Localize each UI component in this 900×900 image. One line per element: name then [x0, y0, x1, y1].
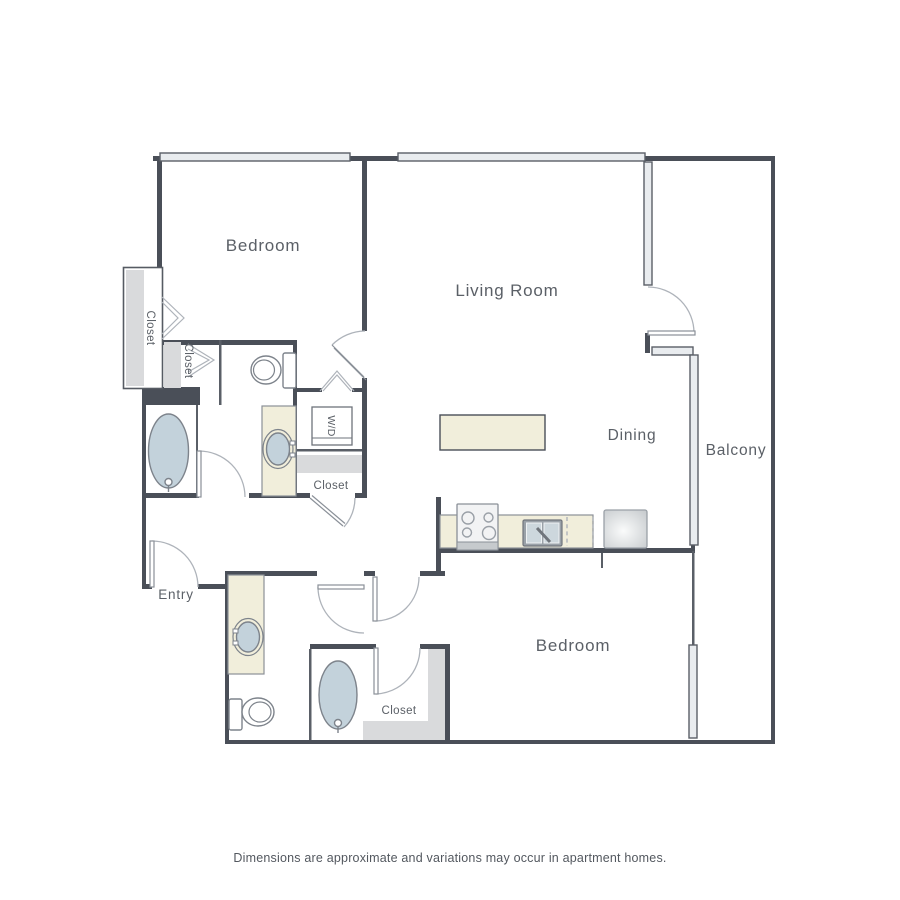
label-closet-left: Closet	[144, 311, 156, 346]
toilet-1	[251, 353, 296, 388]
bathroom1-door	[197, 451, 245, 497]
window-living-room	[398, 153, 645, 161]
room-label-entry: Entry	[158, 587, 194, 602]
window-balcony-upper	[644, 162, 652, 285]
toilet-2	[229, 698, 274, 730]
bathtub-2	[319, 661, 357, 733]
bedroom2-door	[373, 577, 419, 621]
bedroom1-door	[332, 331, 366, 380]
label-closet-bedroom2: Closet	[382, 705, 417, 717]
wall-chase	[142, 387, 200, 405]
closet-left-bifold	[162, 297, 184, 339]
room-label-bedroom-bottom: Bedroom	[536, 636, 611, 655]
refrigerator	[604, 510, 647, 548]
entry-door	[150, 541, 198, 587]
disclaimer-text: Dimensions are approximate and variation…	[233, 851, 666, 865]
washer-dryer-bifold	[320, 371, 354, 391]
room-label-balcony: Balcony	[706, 442, 767, 459]
kitchen-island	[440, 415, 545, 450]
room-label-living-room: Living Room	[455, 281, 558, 300]
stove	[457, 504, 498, 550]
floor-plan-page: Bedroom Living Room Dining Balcony Entry…	[0, 0, 900, 900]
label-closet-inner: Closet	[182, 344, 194, 379]
floor-plan: Bedroom Living Room Dining Balcony Entry…	[0, 0, 900, 900]
kitchen-sink	[523, 520, 562, 546]
hall-closet-door	[310, 496, 355, 528]
bathroom-fixtures	[149, 353, 358, 733]
closets	[124, 268, 446, 741]
room-label-dining: Dining	[608, 427, 657, 444]
bathroom2-door	[318, 585, 364, 633]
window-balcony-lower	[690, 355, 698, 545]
bedroom2-closet-door	[374, 648, 420, 694]
room-label-bedroom-top: Bedroom	[226, 236, 301, 255]
window-bedroom2	[689, 645, 697, 738]
window-dining-small	[652, 347, 693, 355]
balcony-door	[648, 287, 695, 335]
label-closet-hall: Closet	[314, 480, 349, 492]
window-bedroom1	[160, 153, 350, 161]
vanity-sink-2	[233, 619, 263, 656]
label-washer-dryer: W/D	[325, 415, 337, 436]
bathtub-1	[149, 414, 189, 492]
